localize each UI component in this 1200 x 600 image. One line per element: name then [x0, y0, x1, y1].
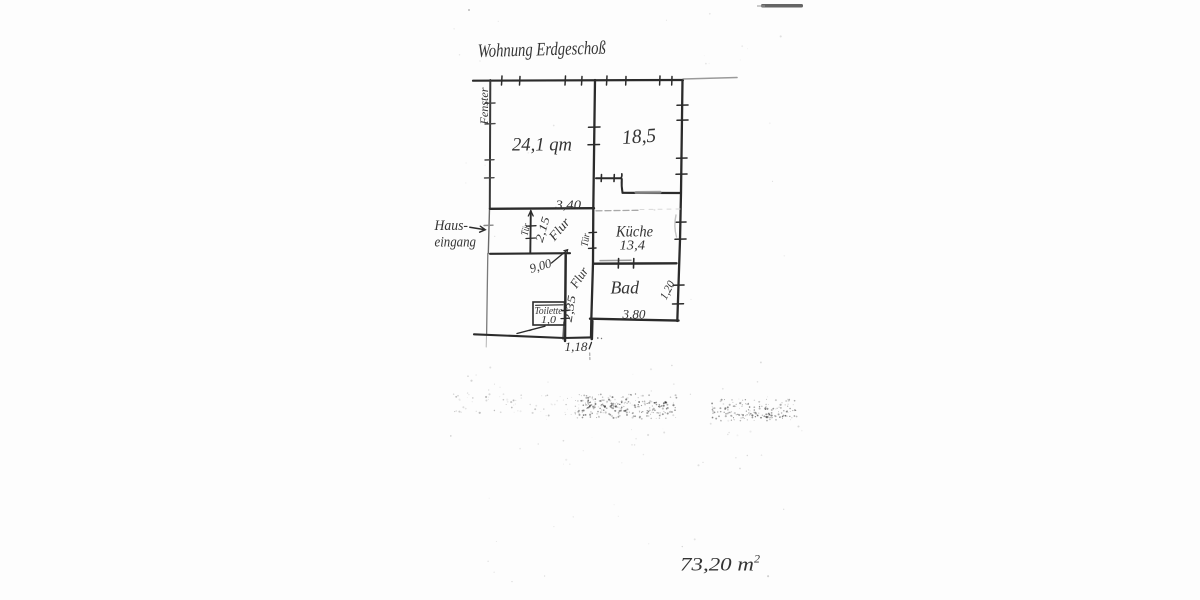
svg-text:3,40: 3,40 — [554, 198, 582, 212]
svg-text:eingang: eingang — [435, 235, 477, 251]
svg-text:1,0: 1,0 — [541, 315, 556, 326]
svg-text:Bad: Bad — [611, 278, 640, 298]
svg-text:73,20 m2: 73,20 m2 — [680, 552, 760, 576]
svg-text:Haus-: Haus- — [434, 218, 468, 234]
svg-text:13,4: 13,4 — [620, 238, 646, 253]
svg-text:1,18: 1,18 — [565, 340, 589, 354]
svg-text:24,1 qm: 24,1 qm — [512, 135, 572, 156]
svg-text:3,80: 3,80 — [621, 307, 646, 322]
svg-text:Wohnung Erdgeschoß: Wohnung Erdgeschoß — [478, 38, 607, 62]
svg-text:18,5: 18,5 — [621, 125, 656, 149]
svg-text:Fenster: Fenster — [477, 87, 491, 125]
